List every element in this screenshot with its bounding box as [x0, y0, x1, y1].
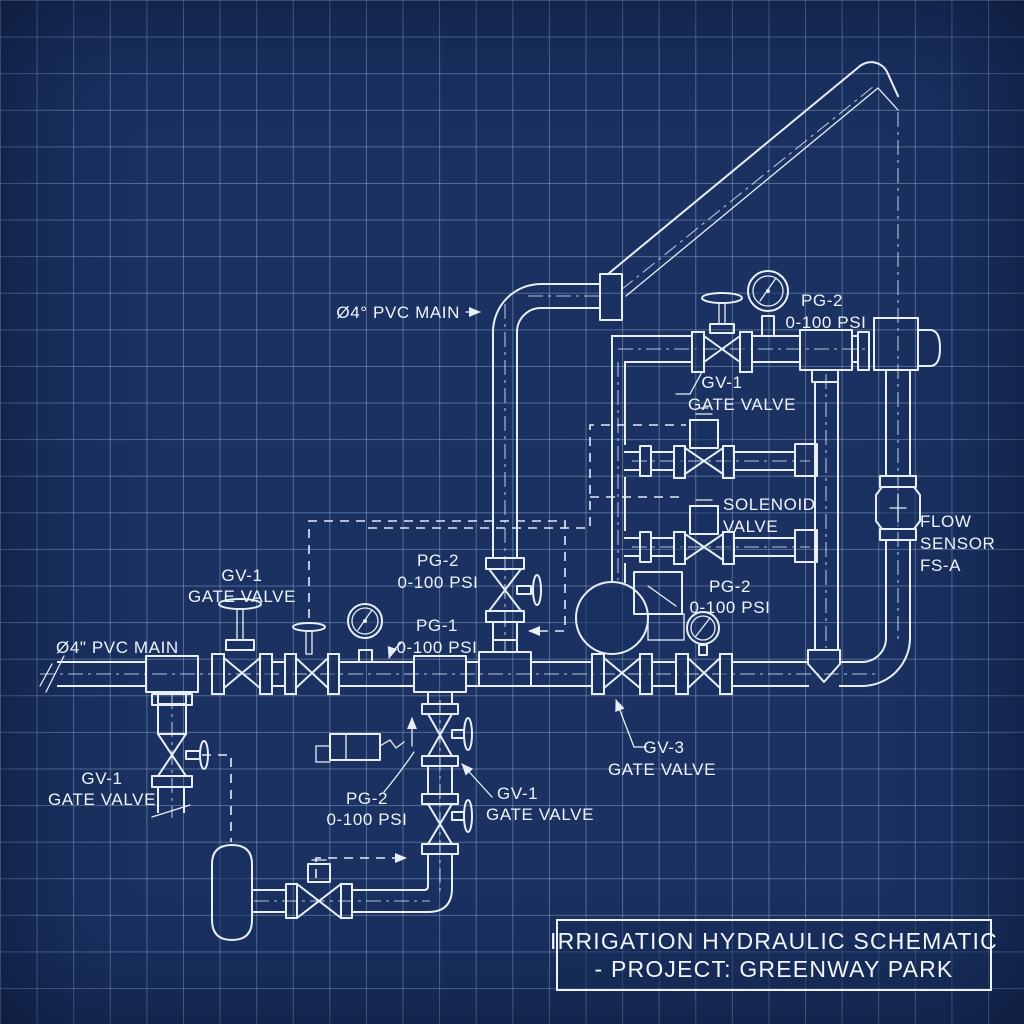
pump [576, 572, 684, 654]
label-main-left: Ø4" PVC MAIN [56, 638, 179, 657]
label-flow-sensor-line2: SENSOR [920, 534, 995, 553]
label-pg2-mid-line1: PG-2 [417, 551, 459, 570]
label-gv3-line1: GV-3 [643, 738, 684, 757]
label-gv1-bottom-line2: GATE VALVE [486, 805, 594, 824]
label-pg2-right-line1: PG-2 [709, 577, 751, 596]
bottom-run [252, 860, 452, 918]
tee-bottom-branch [414, 656, 466, 704]
label-pg1-line2: 0-100 PSI [396, 638, 477, 657]
pipe-centerlines [40, 86, 898, 901]
labels: Ø4° PVC MAIN PG-2 0-100 PSI GV-1 GATE VA… [48, 291, 995, 829]
label-gv1-left-line1: GV-1 [221, 566, 262, 585]
pressure-gauge-pg1 [348, 604, 382, 662]
solenoid-valve-1 [625, 408, 795, 478]
label-solenoid-line1: SOLENOID [723, 495, 816, 514]
label-gv1-left-line2: GATE VALVE [188, 587, 296, 606]
label-pg1-line1: PG-1 [416, 616, 458, 635]
pressure-gauge-pg2-top [748, 271, 788, 336]
gate-valve-gv3 [592, 654, 652, 694]
schematic-drawing: Ø4° PVC MAIN PG-2 0-100 PSI GV-1 GATE VA… [0, 0, 1024, 1024]
left-branch-assembly [152, 694, 208, 817]
label-gv1-bottom-left-line1: GV-1 [81, 769, 122, 788]
label-solenoid-line2: VALVE [723, 517, 778, 536]
tank [212, 845, 252, 940]
valve-stack-bottom [422, 704, 472, 872]
gate-valve-gv1-top [692, 293, 752, 372]
label-pg2-bottom-line2: 0-100 PSI [326, 810, 407, 829]
label-pg2-bottom-line1: PG-2 [346, 789, 388, 808]
flow-sensor-fs-a [862, 370, 920, 686]
label-flow-sensor-line1: FLOW [920, 512, 972, 531]
title-line2: - PROJECT: GREENWAY PARK [595, 956, 954, 982]
label-pg2-top-line2: 0-100 PSI [785, 313, 866, 332]
label-pg2-mid-line2: 0-100 PSI [397, 573, 478, 592]
label-gv1-top-line2: GATE VALVE [688, 395, 796, 414]
label-pg2-top-line1: PG-2 [801, 291, 843, 310]
label-gv1-top-line1: GV-1 [701, 373, 742, 392]
label-gv1-bottom-left-line2: GATE VALVE [48, 790, 156, 809]
gate-valve-gv1-main [212, 599, 272, 694]
control-valve-main [285, 623, 339, 694]
pipe-a-vertical [795, 382, 838, 650]
label-gv1-bottom-line1: GV-1 [497, 784, 538, 803]
pressure-switch [316, 718, 412, 762]
title-line1: IRRIGATION HYDRAULIC SCHEMATIC [550, 928, 998, 954]
title-block: IRRIGATION HYDRAULIC SCHEMATIC - PROJECT… [550, 920, 998, 990]
label-flow-sensor-line3: FS-A [920, 556, 961, 575]
label-gv3-line2: GATE VALVE [608, 760, 716, 779]
blueprint-page: { "drawing": { "background_color": "#1a3… [0, 0, 1024, 1024]
label-main-top: Ø4° PVC MAIN [336, 303, 460, 322]
label-pg2-right-line2: 0-100 PSI [689, 598, 770, 617]
drop-fitting [808, 650, 840, 682]
